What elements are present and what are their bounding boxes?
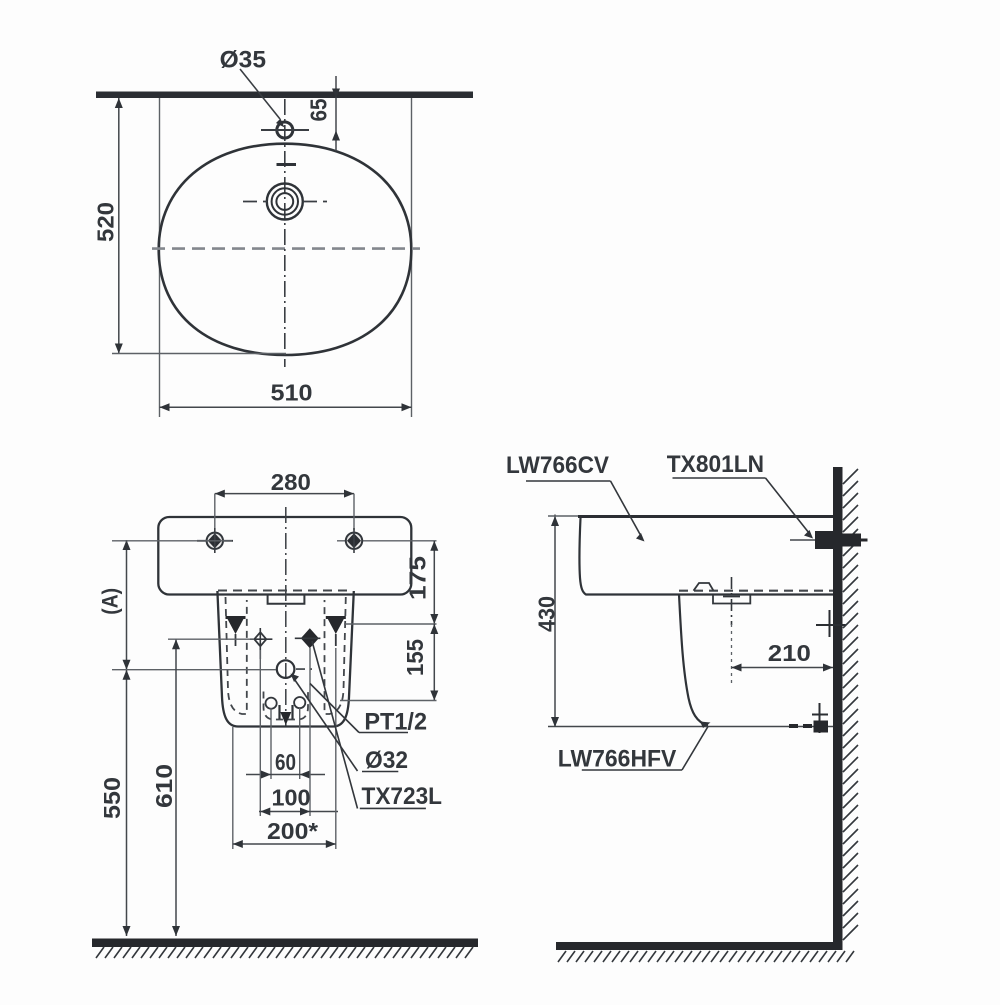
svg-text:TX723L: TX723L (362, 783, 443, 810)
svg-text:100: 100 (272, 785, 311, 811)
svg-text:60: 60 (275, 749, 296, 775)
svg-text:TX801LN: TX801LN (667, 451, 764, 478)
svg-text:210: 210 (768, 640, 811, 666)
svg-text:LW766HFV: LW766HFV (558, 745, 677, 772)
svg-text:550: 550 (99, 777, 125, 819)
svg-text:(A): (A) (98, 588, 123, 615)
svg-text:430: 430 (534, 596, 560, 632)
svg-text:175: 175 (405, 556, 431, 600)
svg-text:610: 610 (151, 764, 177, 808)
svg-text:Ø35: Ø35 (220, 47, 266, 74)
svg-text:Ø32: Ø32 (365, 747, 408, 774)
svg-text:65: 65 (306, 98, 332, 121)
svg-text:200*: 200* (267, 818, 318, 844)
svg-text:280: 280 (271, 469, 311, 495)
svg-text:510: 510 (271, 380, 313, 406)
svg-text:155: 155 (402, 639, 428, 676)
svg-text:520: 520 (93, 202, 119, 242)
svg-text:LW766CV: LW766CV (506, 452, 609, 479)
svg-text:PT1/2: PT1/2 (364, 708, 427, 735)
